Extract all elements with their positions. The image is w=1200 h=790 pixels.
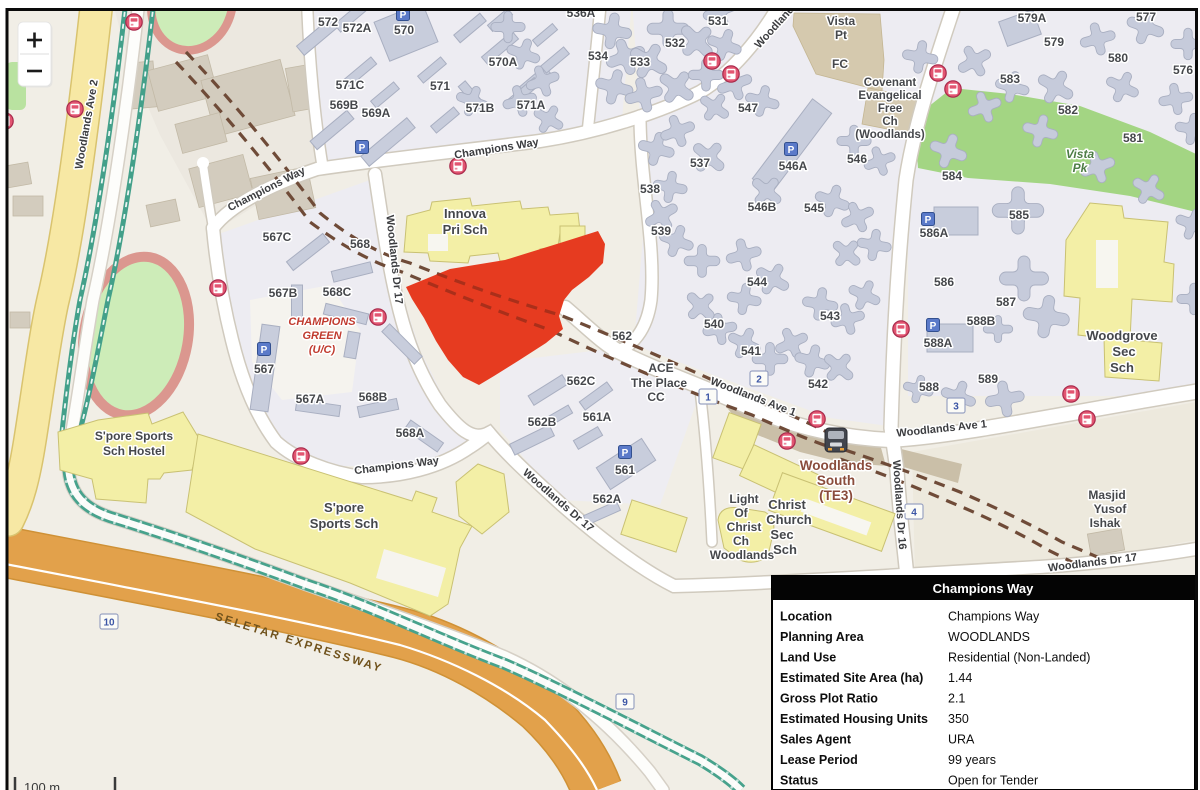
svg-text:585: 585 xyxy=(1009,208,1029,222)
svg-text:Yusof: Yusof xyxy=(1094,502,1128,516)
svg-text:Ch: Ch xyxy=(733,534,749,548)
svg-text:9: 9 xyxy=(622,698,628,709)
svg-text:561: 561 xyxy=(615,463,635,477)
svg-text:568B: 568B xyxy=(359,390,388,404)
svg-text:562A: 562A xyxy=(593,492,622,506)
svg-text:GREEN: GREEN xyxy=(302,330,342,342)
svg-text:Woodlands: Woodlands xyxy=(800,458,873,473)
svg-text:Sch: Sch xyxy=(1110,360,1134,375)
svg-text:546: 546 xyxy=(847,152,867,166)
svg-text:(U/C): (U/C) xyxy=(309,344,336,356)
svg-text:Covenant: Covenant xyxy=(864,77,917,89)
svg-text:533: 533 xyxy=(630,55,650,69)
svg-text:569B: 569B xyxy=(330,98,359,112)
svg-text:Vista: Vista xyxy=(827,14,856,28)
svg-text:Champions Way: Champions Way xyxy=(948,610,1040,624)
svg-text:Masjid: Masjid xyxy=(1088,488,1125,502)
svg-text:S'pore: S'pore xyxy=(324,500,364,515)
svg-text:569A: 569A xyxy=(362,106,391,120)
svg-text:588: 588 xyxy=(919,380,939,394)
svg-text:FC: FC xyxy=(832,57,848,71)
svg-text:(TE3): (TE3) xyxy=(819,488,853,503)
svg-text:583: 583 xyxy=(1000,72,1020,86)
svg-text:Woodlands: Woodlands xyxy=(710,548,775,562)
svg-text:539: 539 xyxy=(651,224,671,238)
svg-text:Sec: Sec xyxy=(1112,344,1135,359)
svg-text:Open for Tender: Open for Tender xyxy=(948,774,1038,788)
svg-text:Light: Light xyxy=(729,492,758,506)
svg-text:567C: 567C xyxy=(263,230,292,244)
svg-text:Planning Area: Planning Area xyxy=(780,630,865,644)
svg-text:Sch: Sch xyxy=(773,542,797,557)
svg-text:Estimated Site Area (ha): Estimated Site Area (ha) xyxy=(780,671,923,685)
svg-text:531: 531 xyxy=(708,14,728,28)
svg-text:4: 4 xyxy=(911,508,917,519)
svg-text:579A: 579A xyxy=(1018,11,1047,25)
svg-text:Status: Status xyxy=(780,774,818,788)
svg-text:546B: 546B xyxy=(748,200,777,214)
svg-text:Pk: Pk xyxy=(1073,161,1089,175)
svg-text:541: 541 xyxy=(741,344,761,358)
svg-text:Church: Church xyxy=(766,512,812,527)
svg-text:588A: 588A xyxy=(924,336,953,350)
svg-text:Pt: Pt xyxy=(835,28,847,42)
svg-text:561A: 561A xyxy=(583,410,612,424)
svg-text:South: South xyxy=(817,473,855,488)
svg-text:570: 570 xyxy=(394,23,414,37)
svg-text:1.44: 1.44 xyxy=(948,671,972,685)
svg-text:584: 584 xyxy=(942,169,962,183)
svg-text:Sports Sch: Sports Sch xyxy=(310,516,379,531)
svg-text:568A: 568A xyxy=(396,426,425,440)
svg-text:579: 579 xyxy=(1044,35,1064,49)
svg-text:3: 3 xyxy=(953,402,959,413)
svg-text:1: 1 xyxy=(705,393,711,404)
svg-text:CHAMPIONS: CHAMPIONS xyxy=(288,316,356,328)
svg-text:WOODLANDS: WOODLANDS xyxy=(948,630,1030,644)
svg-text:2: 2 xyxy=(756,375,762,386)
svg-text:Land Use: Land Use xyxy=(780,651,836,665)
svg-text:580: 580 xyxy=(1108,51,1128,65)
svg-text:567B: 567B xyxy=(269,286,298,300)
svg-text:Innova: Innova xyxy=(444,206,487,221)
svg-text:567A: 567A xyxy=(296,392,325,406)
svg-text:572A: 572A xyxy=(343,21,372,35)
svg-text:Christ: Christ xyxy=(768,497,806,512)
svg-text:S'pore Sports: S'pore Sports xyxy=(95,429,174,443)
svg-text:2.1: 2.1 xyxy=(948,692,965,706)
svg-text:Pri Sch: Pri Sch xyxy=(443,222,488,237)
svg-text:(Woodlands): (Woodlands) xyxy=(855,129,925,141)
svg-text:545: 545 xyxy=(804,201,824,215)
svg-text:100 m: 100 m xyxy=(24,780,60,790)
svg-text:571B: 571B xyxy=(466,101,495,115)
svg-text:Lease Period: Lease Period xyxy=(780,753,858,767)
svg-text:99 years: 99 years xyxy=(948,753,996,767)
svg-text:532: 532 xyxy=(665,36,685,50)
svg-text:534: 534 xyxy=(588,49,608,63)
svg-text:Champions Way: Champions Way xyxy=(933,581,1034,596)
svg-text:Gross Plot Ratio: Gross Plot Ratio xyxy=(780,692,878,706)
svg-text:Sales Agent: Sales Agent xyxy=(780,733,852,747)
svg-text:Christ: Christ xyxy=(727,520,762,534)
svg-text:Evangelical: Evangelical xyxy=(858,90,921,102)
svg-text:544: 544 xyxy=(747,275,767,289)
svg-text:547: 547 xyxy=(738,101,758,115)
svg-text:586A: 586A xyxy=(920,226,949,240)
svg-text:589: 589 xyxy=(978,372,998,386)
svg-text:Vista: Vista xyxy=(1066,147,1095,161)
svg-text:Sec: Sec xyxy=(770,527,793,542)
svg-text:URA: URA xyxy=(948,733,975,747)
svg-text:568: 568 xyxy=(350,237,370,251)
svg-text:587: 587 xyxy=(996,295,1016,309)
svg-text:570A: 570A xyxy=(489,55,518,69)
svg-text:572: 572 xyxy=(318,15,338,29)
svg-text:350: 350 xyxy=(948,712,969,726)
svg-text:538: 538 xyxy=(640,182,660,196)
svg-text:Ch: Ch xyxy=(882,116,897,128)
svg-text:576: 576 xyxy=(1173,63,1193,77)
svg-text:562C: 562C xyxy=(567,374,596,388)
svg-text:Sch Hostel: Sch Hostel xyxy=(103,444,165,458)
svg-text:Residential (Non-Landed): Residential (Non-Landed) xyxy=(948,651,1090,665)
svg-text:581: 581 xyxy=(1123,131,1143,145)
svg-text:Free: Free xyxy=(878,103,902,115)
svg-text:540: 540 xyxy=(704,317,724,331)
svg-text:ACE: ACE xyxy=(648,361,673,375)
svg-text:Location: Location xyxy=(780,610,832,624)
svg-text:571C: 571C xyxy=(336,78,365,92)
svg-text:543: 543 xyxy=(820,309,840,323)
svg-text:CC: CC xyxy=(647,390,665,404)
svg-text:582: 582 xyxy=(1058,103,1078,117)
svg-text:Estimated Housing Units: Estimated Housing Units xyxy=(780,712,928,726)
svg-text:546A: 546A xyxy=(779,159,808,173)
svg-text:537: 537 xyxy=(690,156,710,170)
svg-text:567: 567 xyxy=(254,362,274,376)
svg-text:542: 542 xyxy=(808,377,828,391)
svg-text:Ishak: Ishak xyxy=(1090,516,1121,530)
svg-text:568C: 568C xyxy=(323,285,352,299)
svg-text:571A: 571A xyxy=(517,98,546,112)
svg-text:562B: 562B xyxy=(528,415,557,429)
svg-text:577: 577 xyxy=(1136,10,1156,24)
svg-text:The Place: The Place xyxy=(631,376,687,390)
svg-text:588B: 588B xyxy=(967,314,996,328)
svg-text:562: 562 xyxy=(612,329,632,343)
svg-text:10: 10 xyxy=(103,618,115,629)
svg-text:571: 571 xyxy=(430,79,450,93)
svg-text:Woodgrove: Woodgrove xyxy=(1086,328,1157,343)
svg-text:586: 586 xyxy=(934,275,954,289)
svg-text:Of: Of xyxy=(734,506,748,520)
